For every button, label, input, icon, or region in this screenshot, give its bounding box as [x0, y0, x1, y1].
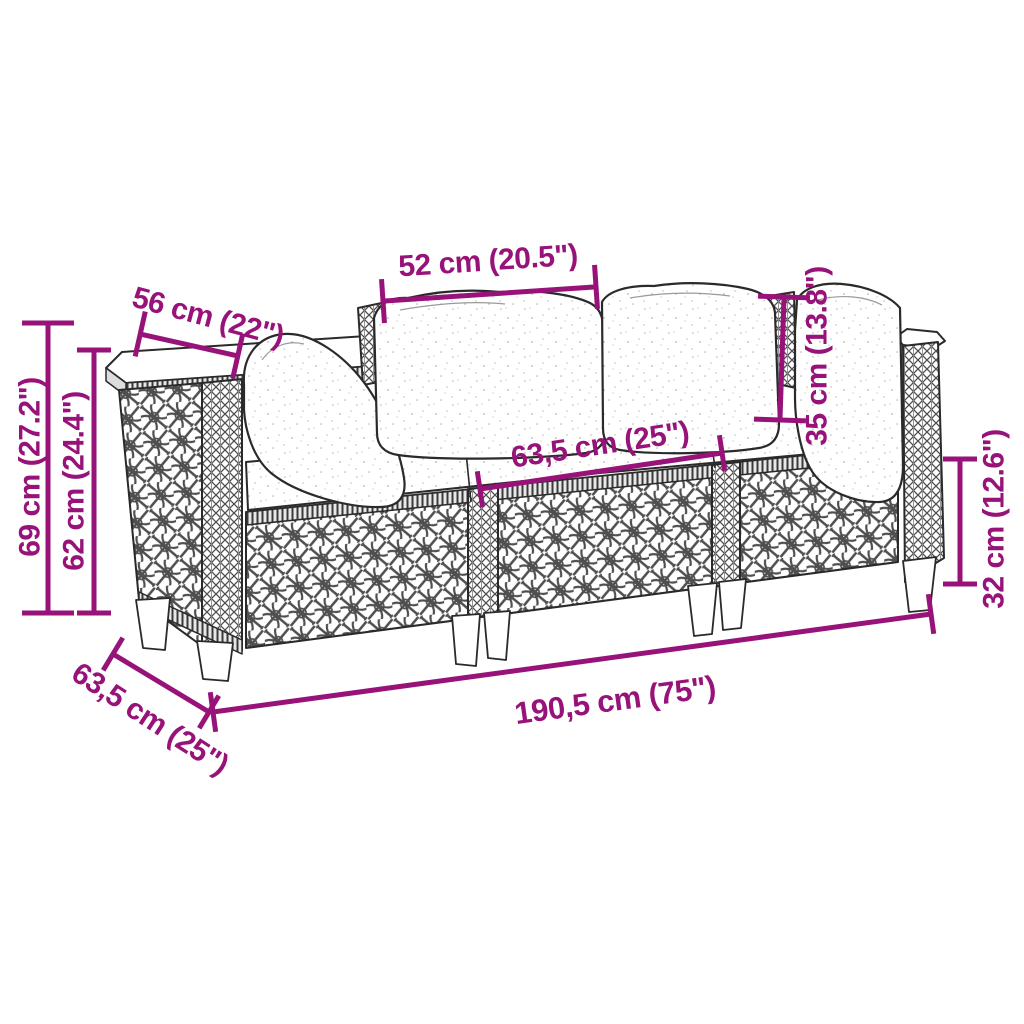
sofa-foot — [688, 583, 717, 636]
dimension-32-base-height: 32 cm (12.6") — [943, 429, 1011, 609]
sofa-foot — [484, 611, 510, 660]
diagram-canvas: 52 cm (20.5") 56 cm (22") 35 cm (13.8") — [0, 0, 1024, 1024]
sofa-foot — [197, 641, 233, 681]
dimension-label: 52 cm (20.5") — [397, 239, 578, 284]
dimension-label: 190,5 cm (75") — [512, 669, 717, 731]
module-divider — [712, 462, 740, 587]
sofa-dimension-diagram: 52 cm (20.5") 56 cm (22") 35 cm (13.8") — [0, 0, 1024, 1024]
sofa-foot — [452, 614, 480, 666]
sofa-foot — [136, 598, 170, 650]
dimension-label: 56 cm (22") — [129, 281, 288, 353]
dimension-62-armrest-height: 62 cm (24.4") — [58, 350, 112, 613]
dimension-label: 69 cm (27.2") — [14, 377, 47, 557]
dimension-label: 32 cm (12.6") — [978, 429, 1011, 609]
sofa-foot — [719, 579, 746, 630]
dimension-label: 62 cm (24.4") — [58, 391, 91, 571]
dimension-label: 35 cm (13.8") — [801, 266, 834, 446]
